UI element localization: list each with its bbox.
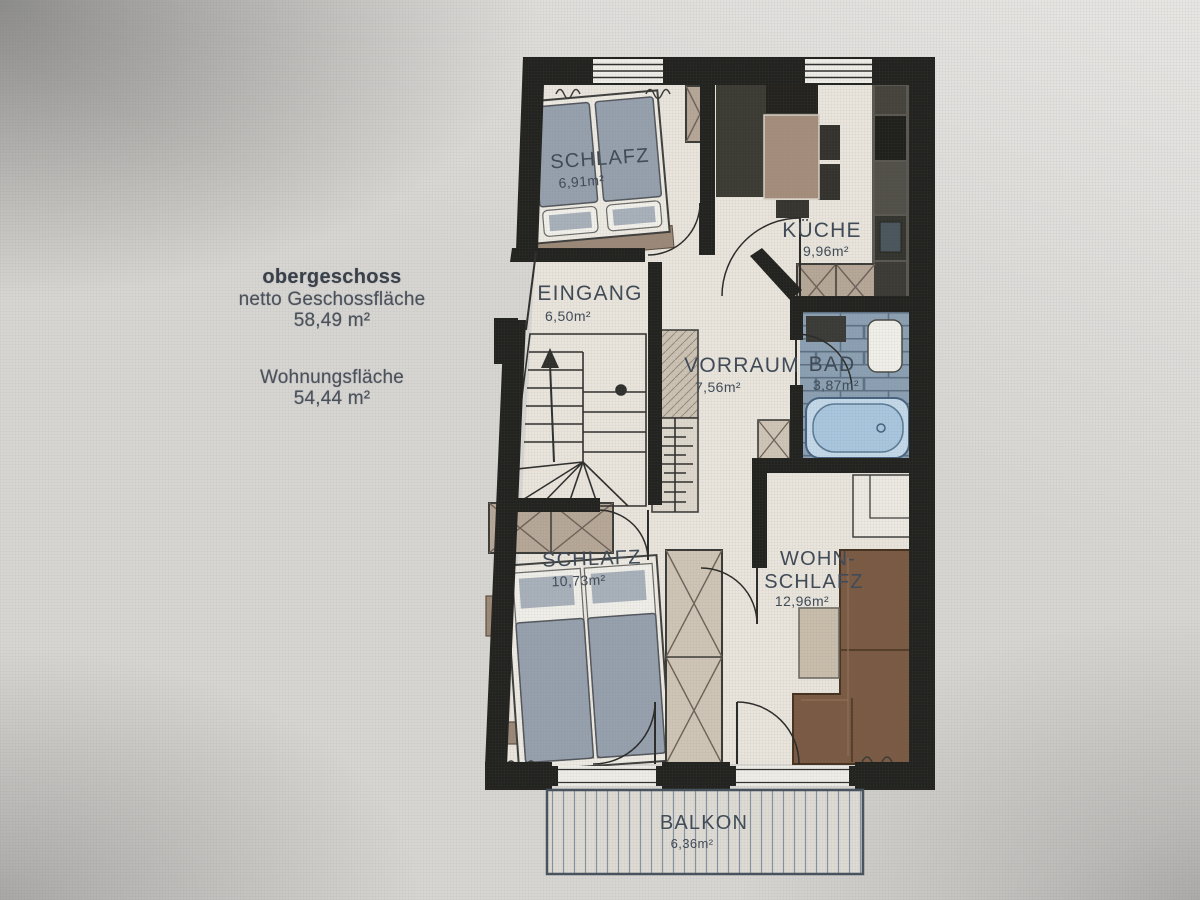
wall-schlafz-kueche — [700, 83, 715, 255]
label-kueche: KÜCHE — [782, 219, 862, 242]
closet-column — [666, 550, 722, 764]
label-bad: BAD — [809, 353, 856, 376]
wall-bad-left-bottom — [790, 385, 803, 460]
wall-bad-bottom — [752, 458, 909, 473]
area-kueche: 9,96m² — [803, 243, 849, 259]
wall-bad-left-top — [790, 312, 803, 340]
wall-bottom-right — [855, 762, 935, 790]
wall-eingang-vorraum — [648, 262, 662, 505]
floor-plan-drawing: SCHLAFZ 6,91m² KÜCHE 9,96m² EINGANG 6,50… — [0, 0, 1200, 900]
wall-bottom-middle — [662, 762, 730, 790]
label-eingang: EINGANG — [537, 282, 642, 305]
bathtub — [806, 398, 909, 458]
area-wohn: 12,96m² — [775, 593, 829, 609]
window-top-right — [800, 59, 877, 83]
wall-schlafz-eingang — [510, 248, 645, 262]
appliance-bad — [806, 316, 846, 342]
label-schlafz-lower: SCHLAFZ — [542, 546, 642, 571]
area-vorraum: 7,56m² — [695, 379, 741, 395]
wall-bottom-left — [485, 762, 552, 790]
area-schlafz-top: 6,91m² — [558, 172, 605, 191]
desk — [853, 475, 912, 537]
area-eingang: 6,50m² — [545, 308, 591, 324]
bathroom-sink — [868, 320, 902, 372]
area-schlafz-lower: 10,73m² — [551, 572, 606, 590]
wall-vorraum-schlafz — [498, 498, 600, 512]
wall-vorraum-wohn — [752, 473, 767, 568]
area-balkon: 6,36m² — [671, 836, 714, 851]
label-vorraum: VORRAUM — [684, 354, 800, 377]
area-bad: 3,87m² — [813, 377, 859, 393]
floor-plan-photo: obergeschoss netto Geschossfläche 58,49 … — [0, 0, 1200, 900]
wall-kueche-bottom — [790, 296, 909, 312]
window-top-left — [588, 59, 668, 83]
shaft-box — [758, 420, 790, 460]
label-wohn-line2: SCHLAFZ — [764, 571, 864, 593]
label-wohn-line1: WOHN- — [780, 548, 856, 570]
coffee-table — [799, 608, 839, 678]
wall-right — [909, 57, 935, 790]
label-balkon: BALKON — [660, 812, 748, 834]
